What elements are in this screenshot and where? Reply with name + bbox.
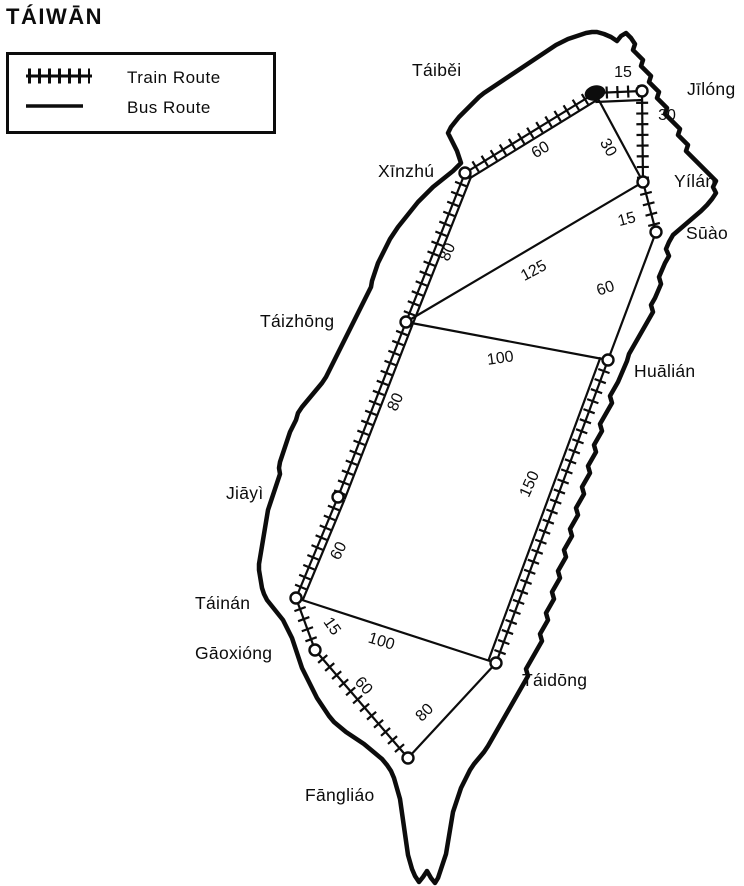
city-label-gaoxiong: Gāoxióng xyxy=(195,643,272,663)
city-label-taidong: Táidōng xyxy=(522,670,587,690)
city-label-tainan: Táinán xyxy=(195,593,250,613)
city-label-yilan: Yílán xyxy=(674,171,715,191)
city-label-jiayi: Jiāyì xyxy=(226,483,263,503)
city-marker-gaoxiong xyxy=(310,645,321,656)
city-label-fangliao: Fāngliáo xyxy=(305,785,375,805)
city-marker-taidong xyxy=(491,658,502,669)
city-marker-fangliao xyxy=(403,753,414,764)
city-marker-yilan xyxy=(638,177,649,188)
taiwan-map: 153030601580125601008015060151006080Táib… xyxy=(0,0,744,886)
city-marker-xinzhu xyxy=(460,168,471,179)
distance-label-jilong-yilan: 30 xyxy=(658,107,676,124)
city-marker-tainan xyxy=(291,593,302,604)
city-label-hualian: Huālián xyxy=(634,361,695,381)
city-label-taibei: Táiběi xyxy=(412,60,461,80)
city-label-xinzhu: Xīnzhú xyxy=(378,161,434,181)
city-label-jilong: Jīlóng xyxy=(687,79,736,99)
city-label-suao: Sūào xyxy=(686,223,728,243)
city-marker-suao xyxy=(651,227,662,238)
city-marker-taizhong xyxy=(401,317,412,328)
train-line xyxy=(642,91,643,182)
city-marker-hualian xyxy=(603,355,614,366)
city-marker-jilong xyxy=(637,86,648,97)
city-marker-jiayi xyxy=(333,492,344,503)
city-label-taizhong: Táizhōng xyxy=(260,311,334,331)
taiwan-route-map-page: { "title": "TÁIWĀN", "legend": { "train_… xyxy=(0,0,744,886)
distance-label-taibei-jilong: 15 xyxy=(614,64,632,81)
